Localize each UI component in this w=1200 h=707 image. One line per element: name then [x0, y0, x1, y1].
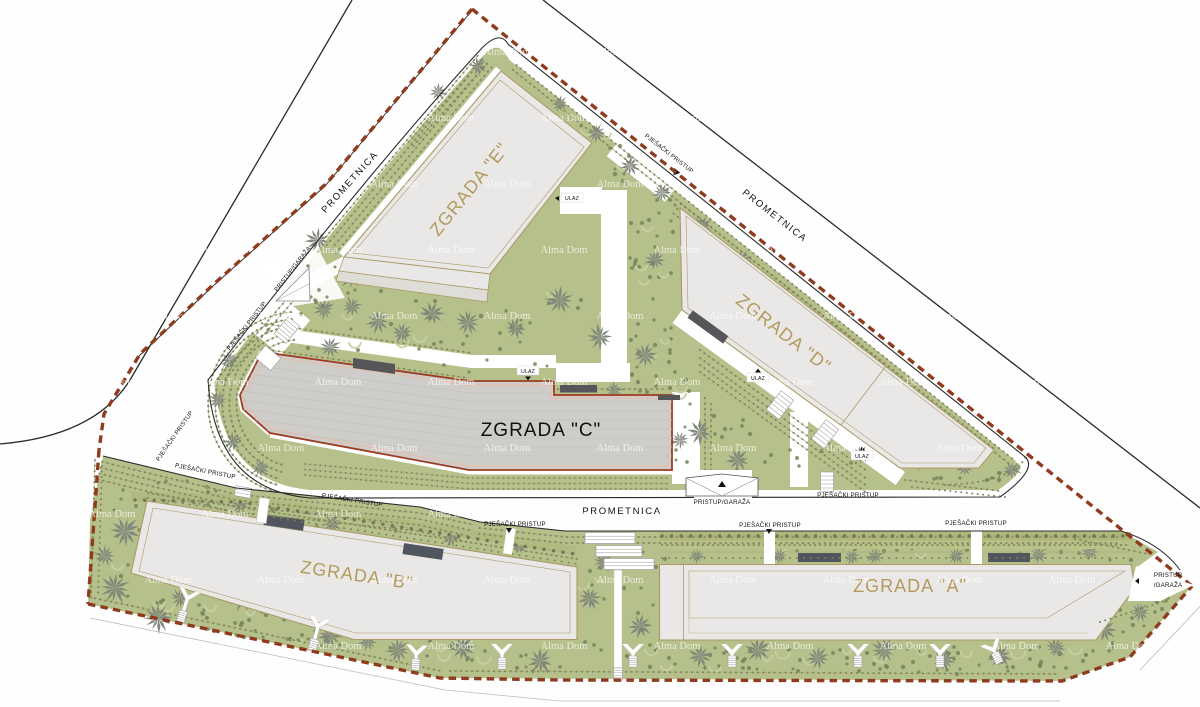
svg-text:Alma Dom: Alma Dom [654, 509, 701, 520]
svg-text:Alma Dom: Alma Dom [32, 179, 79, 190]
svg-text:PJEŠAČKI PRISTUP: PJEŠAČKI PRISTUP [484, 521, 546, 528]
svg-text:PJEŠAČKI PRISTUP: PJEŠAČKI PRISTUP [739, 522, 801, 529]
svg-text:Alma Dom: Alma Dom [767, 641, 814, 652]
svg-text:Alma Dom: Alma Dom [32, 311, 79, 322]
svg-text:Alma Dom: Alma Dom [597, 311, 644, 322]
svg-text:Alma Dom: Alma Dom [936, 443, 983, 454]
svg-text:Alma Dom: Alma Dom [371, 311, 418, 322]
svg-text:Alma Dom: Alma Dom [1106, 509, 1153, 520]
svg-text:Alma Dom: Alma Dom [428, 641, 475, 652]
svg-text:Alma Dom: Alma Dom [823, 47, 870, 58]
svg-text:Alma Dom: Alma Dom [315, 641, 362, 652]
svg-text:Alma Dom: Alma Dom [993, 377, 1040, 388]
svg-text:Alma Dom: Alma Dom [993, 641, 1040, 652]
svg-text:Alma Dom: Alma Dom [823, 443, 870, 454]
svg-text:ULAZ: ULAZ [565, 196, 579, 202]
svg-text:Alma Dom: Alma Dom [880, 377, 927, 388]
svg-text:Alma Dom: Alma Dom [484, 443, 531, 454]
svg-text:Alma Dom: Alma Dom [710, 311, 757, 322]
svg-text:Alma Dom: Alma Dom [428, 245, 475, 256]
svg-text:Alma Dom: Alma Dom [428, 113, 475, 124]
svg-text:Alma Dom: Alma Dom [32, 47, 79, 58]
svg-text:Alma Dom: Alma Dom [484, 311, 531, 322]
svg-text:Alma Dom: Alma Dom [880, 641, 927, 652]
svg-text:Alma Dom: Alma Dom [202, 113, 249, 124]
svg-text:Alma Dom: Alma Dom [145, 179, 192, 190]
svg-text:Alma Dom: Alma Dom [767, 113, 814, 124]
svg-text:Alma Dom: Alma Dom [145, 443, 192, 454]
svg-text:Alma Dom: Alma Dom [541, 641, 588, 652]
svg-text:Alma Dom: Alma Dom [936, 311, 983, 322]
svg-text:Alma Dom: Alma Dom [315, 245, 362, 256]
svg-text:Alma Dom: Alma Dom [202, 509, 249, 520]
svg-text:Alma Dom: Alma Dom [1106, 113, 1153, 124]
svg-text:Alma Dom: Alma Dom [258, 575, 305, 586]
svg-text:Alma Dom: Alma Dom [484, 575, 531, 586]
svg-text:Alma Dom: Alma Dom [89, 641, 136, 652]
svg-text:Alma Dom: Alma Dom [541, 377, 588, 388]
svg-text:Alma Dom: Alma Dom [428, 509, 475, 520]
svg-text:ULAZ: ULAZ [521, 369, 535, 375]
svg-text:Alma Dom: Alma Dom [767, 509, 814, 520]
svg-text:Alma Dom: Alma Dom [654, 245, 701, 256]
svg-text:Alma Dom: Alma Dom [371, 47, 418, 58]
svg-text:Alma Dom: Alma Dom [880, 509, 927, 520]
svg-text:PRISTUP: PRISTUP [1154, 572, 1182, 579]
svg-text:Alma Dom: Alma Dom [993, 245, 1040, 256]
svg-text:Alma Dom: Alma Dom [89, 509, 136, 520]
svg-text:PROMETNICA: PROMETNICA [582, 506, 661, 517]
svg-text:Alma Dom: Alma Dom [710, 575, 757, 586]
svg-text:Alma Dom: Alma Dom [315, 509, 362, 520]
svg-text:Alma Dom: Alma Dom [258, 47, 305, 58]
svg-text:Alma Dom: Alma Dom [89, 245, 136, 256]
svg-text:Alma Dom: Alma Dom [936, 47, 983, 58]
svg-text:Alma Dom: Alma Dom [654, 641, 701, 652]
svg-text:Alma Dom: Alma Dom [315, 377, 362, 388]
svg-text:Alma Dom: Alma Dom [1049, 575, 1096, 586]
svg-text:Alma Dom: Alma Dom [710, 179, 757, 190]
svg-text:PRISTUP/GARAŽA: PRISTUP/GARAŽA [694, 498, 751, 506]
svg-text:Alma Dom: Alma Dom [1049, 311, 1096, 322]
svg-text:Alma Dom: Alma Dom [993, 509, 1040, 520]
svg-text:PJEŠAČKI PRISTUP: PJEŠAČKI PRISTUP [945, 520, 1007, 527]
svg-text:ZGRADA "C": ZGRADA "C" [481, 420, 602, 441]
svg-text:Alma Dom: Alma Dom [823, 179, 870, 190]
svg-text:Alma Dom: Alma Dom [710, 47, 757, 58]
svg-text:Alma Dom: Alma Dom [202, 245, 249, 256]
svg-text:Alma Dom: Alma Dom [258, 311, 305, 322]
svg-text:Alma Dom: Alma Dom [654, 113, 701, 124]
svg-text:Alma Dom: Alma Dom [541, 509, 588, 520]
svg-text:Alma Dom: Alma Dom [541, 245, 588, 256]
svg-text:Alma Dom: Alma Dom [202, 641, 249, 652]
svg-text:Alma Dom: Alma Dom [428, 377, 475, 388]
svg-text:Alma Dom: Alma Dom [1049, 47, 1096, 58]
svg-text:Alma Dom: Alma Dom [936, 179, 983, 190]
svg-text:PJEŠAČKI PRISTUP: PJEŠAČKI PRISTUP [817, 492, 879, 499]
svg-text:Alma Dom: Alma Dom [145, 311, 192, 322]
svg-text:Alma Dom: Alma Dom [597, 443, 644, 454]
svg-text:Alma Dom: Alma Dom [32, 443, 79, 454]
svg-text:Alma Dom: Alma Dom [1106, 641, 1153, 652]
svg-text:Alma Dom: Alma Dom [484, 179, 531, 190]
svg-text:Alma Dom: Alma Dom [1049, 443, 1096, 454]
svg-text:Alma Dom: Alma Dom [597, 47, 644, 58]
svg-text:Alma Dom: Alma Dom [936, 575, 983, 586]
svg-text:Alma Dom: Alma Dom [767, 377, 814, 388]
svg-text:Alma Dom: Alma Dom [32, 575, 79, 586]
svg-text:Alma Dom: Alma Dom [880, 245, 927, 256]
svg-text:Alma Dom: Alma Dom [597, 575, 644, 586]
svg-text:Alma Dom: Alma Dom [371, 443, 418, 454]
svg-text:ULAZ: ULAZ [855, 454, 869, 460]
svg-text:Alma Dom: Alma Dom [993, 113, 1040, 124]
svg-text:/GARAŽA: /GARAŽA [1154, 581, 1183, 589]
svg-text:Alma Dom: Alma Dom [541, 113, 588, 124]
svg-text:Alma Dom: Alma Dom [654, 377, 701, 388]
svg-text:Alma Dom: Alma Dom [371, 575, 418, 586]
svg-text:Alma Dom: Alma Dom [710, 443, 757, 454]
svg-text:Alma Dom: Alma Dom [1049, 179, 1096, 190]
svg-text:Alma Dom: Alma Dom [89, 377, 136, 388]
svg-text:Alma Dom: Alma Dom [1106, 245, 1153, 256]
svg-text:Alma Dom: Alma Dom [258, 179, 305, 190]
svg-text:Alma Dom: Alma Dom [145, 575, 192, 586]
svg-text:Alma Dom: Alma Dom [89, 113, 136, 124]
svg-text:ULAZ: ULAZ [751, 376, 765, 382]
svg-text:Alma Dom: Alma Dom [1106, 377, 1153, 388]
svg-text:Alma Dom: Alma Dom [767, 245, 814, 256]
svg-text:Alma Dom: Alma Dom [823, 311, 870, 322]
svg-text:Alma Dom: Alma Dom [371, 179, 418, 190]
svg-text:Alma Dom: Alma Dom [484, 47, 531, 58]
svg-text:Alma Dom: Alma Dom [315, 113, 362, 124]
svg-text:Alma Dom: Alma Dom [880, 113, 927, 124]
svg-text:Alma Dom: Alma Dom [597, 179, 644, 190]
svg-text:Alma Dom: Alma Dom [823, 575, 870, 586]
svg-text:Alma Dom: Alma Dom [202, 377, 249, 388]
svg-text:Alma Dom: Alma Dom [258, 443, 305, 454]
svg-text:Alma Dom: Alma Dom [145, 47, 192, 58]
